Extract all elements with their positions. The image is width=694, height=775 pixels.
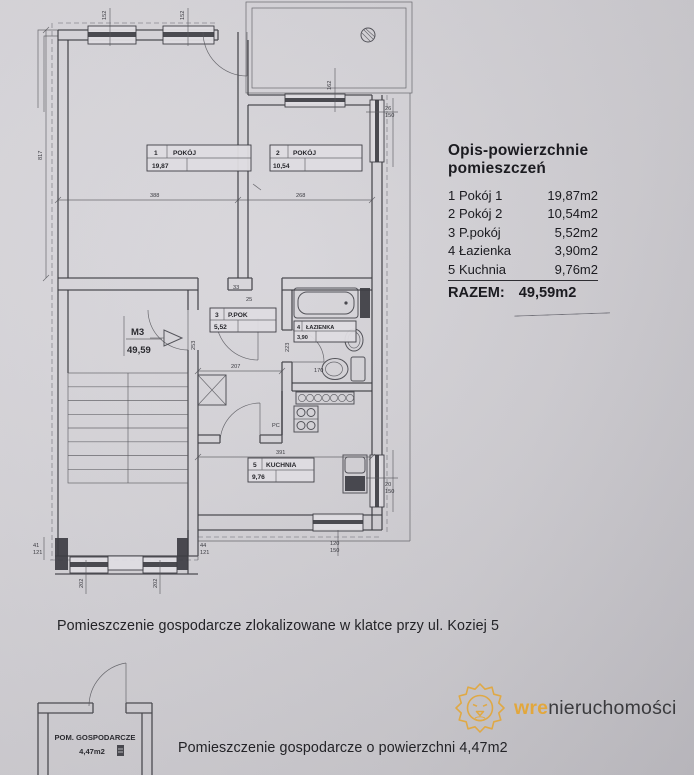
dim-bath-depth: 223 xyxy=(285,343,291,352)
dim-toilet: 170 xyxy=(314,368,323,374)
room-1-label: 1 POKÓJ 19,87 xyxy=(147,145,251,171)
legend-title: Opis-powierzchnie pomieszczeń xyxy=(448,142,688,178)
room-5-no: 5 xyxy=(253,462,257,469)
toilet-icon xyxy=(322,357,365,381)
room-3-area: 5,52 xyxy=(214,324,227,331)
duct-shaft xyxy=(198,375,226,405)
stove-label: PC xyxy=(272,423,280,429)
legend-no: 1 xyxy=(448,187,459,205)
dim-hall-depth: 253 xyxy=(191,341,197,350)
legend-area: 3,90m2 xyxy=(536,242,598,260)
balcony-drain-icon xyxy=(361,28,375,42)
legend-name: Pokój 2 xyxy=(459,205,536,223)
room-5-name: KUCHNIA xyxy=(266,462,297,469)
neighbour-wall-contour xyxy=(38,30,58,112)
room-2-area: 10,54 xyxy=(273,163,290,170)
storage-room-plan: POM. GOSPODARCZE 4,47m2 xyxy=(38,663,152,775)
legend-no: 5 xyxy=(448,261,459,279)
room-2-name: POKÓJ xyxy=(293,148,316,157)
legend-no: 2 xyxy=(448,205,459,223)
legend-area: 5,52m2 xyxy=(536,224,598,242)
dim-bottom-right-a: 44 xyxy=(200,543,206,549)
brand-logo: wrenieruchomości xyxy=(453,679,677,737)
dim-bottom-left-a: 41 xyxy=(33,543,39,549)
room-1-no: 1 xyxy=(154,150,158,157)
room-2-label: 2 POKÓJ 10,54 xyxy=(270,145,362,171)
dim-hall-pier2: 25 xyxy=(246,297,252,303)
staircase xyxy=(68,373,188,483)
exterior-walls xyxy=(55,30,410,574)
legend-row-5: 5 Kuchnia 9,76m2 xyxy=(448,261,598,281)
storage-label: POM. GOSPODARCZE xyxy=(54,733,135,742)
kitchen-sink-unit-icon xyxy=(343,455,367,493)
dim-right-win1-a: 26 xyxy=(385,106,391,112)
room-1-area: 19,87 xyxy=(152,163,169,170)
legend-row-4: 4 Łazienka 3,90m2 xyxy=(448,242,598,260)
dim-hall-pier: 33 xyxy=(233,285,239,291)
radiator-icon xyxy=(296,392,354,404)
legend-area: 9,76m2 xyxy=(536,261,598,279)
unit-code: M3 xyxy=(131,327,144,338)
brand-accent: wre xyxy=(514,697,548,719)
legend-no: 4 xyxy=(448,242,459,260)
brand-rest: nieruchomości xyxy=(548,697,676,719)
legend-total-label: RAZEM: xyxy=(448,285,505,301)
legend-row-2: 2 Pokój 2 10,54m2 xyxy=(448,205,598,223)
storage-door xyxy=(89,663,126,707)
dim-bottom-width-1: 202 xyxy=(79,579,85,588)
stove-icon xyxy=(294,406,318,432)
storage-area: 4,47m2 xyxy=(79,747,105,756)
room-1-name: POKÓJ xyxy=(173,148,196,157)
dim-hall-width: 207 xyxy=(231,364,240,370)
area-legend: Opis-powierzchnie pomieszczeń 1 Pokój 1 … xyxy=(448,142,688,301)
legend-row-3: 3 P.pokój 5,52m2 xyxy=(448,224,598,242)
dim-bottom-width-2: 202 xyxy=(153,579,159,588)
dim-left-height: 817 xyxy=(38,151,44,160)
brand-wordmark: wrenieruchomości xyxy=(514,697,677,720)
room-3-label: 3 P.POK 5,52 xyxy=(210,308,276,332)
room-5-area: 9,76 xyxy=(252,474,265,481)
legend-row-1: 1 Pokój 1 19,87m2 xyxy=(448,187,598,205)
floor-plan-drawing: 388 268 817 152 152 162 33 25 207 253 22… xyxy=(0,0,694,775)
room-4-label: 4 ŁAZIENKA 3,90 xyxy=(294,321,356,342)
dim-kitchen-width: 391 xyxy=(276,450,285,456)
scanned-document-page: { "page": {"paper_light": "#dad8dd", "pa… xyxy=(0,0,694,775)
legend-area: 10,54m2 xyxy=(536,205,598,223)
legend-name: Kuchnia xyxy=(459,261,536,279)
legend-name: Łazienka xyxy=(459,242,536,260)
bathtub-icon xyxy=(294,288,370,318)
storage-location-caption: Pomieszczenie gospodarcze zlokalizowane … xyxy=(57,618,499,634)
room-2-no: 2 xyxy=(276,150,280,157)
legend-area: 19,87m2 xyxy=(536,187,598,205)
room-3-name: P.POK xyxy=(228,312,248,319)
legend-name: P.pokój xyxy=(459,224,536,242)
room-5-label: 5 KUCHNIA 9,76 xyxy=(248,458,314,482)
dim-right-win2-b: 150 xyxy=(385,489,394,495)
unit-label: M3 49,59 xyxy=(124,316,182,356)
dim-right-win1-b: 150 xyxy=(385,113,394,119)
kitchen-door xyxy=(220,403,260,443)
dim-bottom-left-b: 121 xyxy=(33,550,42,556)
unit-area: 49,59 xyxy=(127,345,151,356)
legend-name: Pokój 1 xyxy=(459,187,536,205)
lion-icon xyxy=(453,679,507,737)
dim-top-window-2: 152 xyxy=(180,11,186,20)
apartment-plan: 388 268 817 152 152 162 33 25 207 253 22… xyxy=(33,2,412,594)
storage-area-caption: Pomieszczenie gospodarcze o powierzchni … xyxy=(178,740,508,756)
dim-bottom-window-a: 120 xyxy=(330,541,339,547)
dim-balcony-window: 162 xyxy=(327,81,333,90)
dim-room1-width: 388 xyxy=(150,193,159,199)
room-4-name: ŁAZIENKA xyxy=(306,325,334,331)
legend-total: RAZEM: 49,59m2 xyxy=(448,285,614,301)
dim-top-window-1: 152 xyxy=(102,11,108,20)
legend-no: 3 xyxy=(448,224,459,242)
dim-room2-width: 268 xyxy=(296,193,305,199)
dim-bottom-window-b: 150 xyxy=(330,548,339,554)
legend-total-value: 49,59m2 xyxy=(519,285,577,301)
dim-right-win2-a: 20 xyxy=(385,482,391,488)
storage-symbol xyxy=(117,745,124,756)
room-3-no: 3 xyxy=(215,312,219,319)
room-4-area: 3,90 xyxy=(297,335,308,341)
dim-bottom-right-b: 121 xyxy=(200,550,209,556)
balcony xyxy=(246,2,412,93)
